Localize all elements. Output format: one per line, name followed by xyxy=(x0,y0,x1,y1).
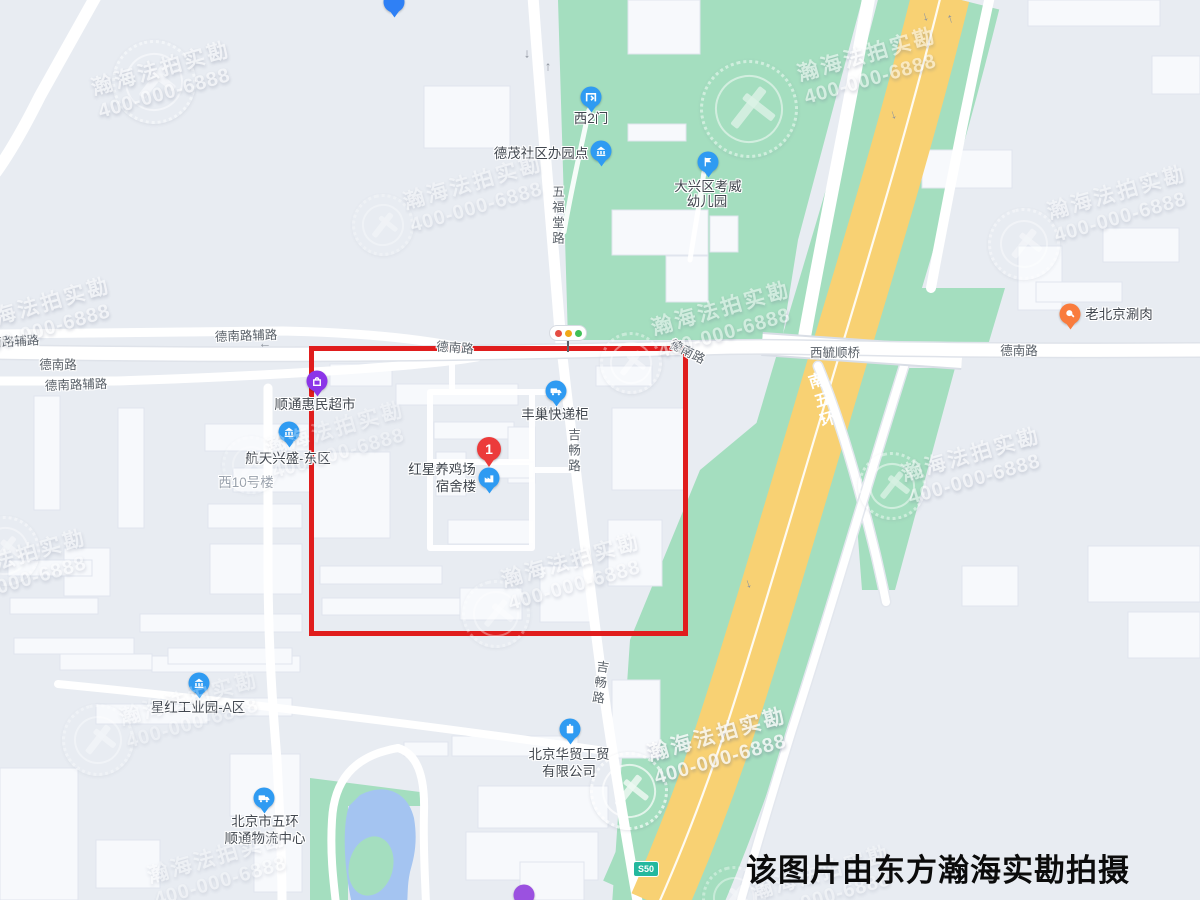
road-label-wufutang: 五福堂路 xyxy=(548,185,567,247)
truck-icon xyxy=(546,381,567,402)
poi-label: 航天兴盛-东区 xyxy=(245,451,331,466)
building-icon xyxy=(279,422,300,443)
poi-label-line2: 幼儿园 xyxy=(687,194,728,209)
road-label-jichang-upper: 吉畅路 xyxy=(564,428,583,475)
arrow-left-icon: ← xyxy=(259,336,272,351)
poi-label: 老北京涮肉 xyxy=(1085,307,1153,322)
school-icon xyxy=(591,141,612,162)
water-layer xyxy=(342,789,415,900)
poi-label-line2: 宿舍楼 xyxy=(436,479,477,494)
arrow-down-icon: ↓ xyxy=(524,46,531,61)
road-label-denan-center: 德南路 xyxy=(436,336,475,358)
route-badge-s50: S50 xyxy=(633,861,659,877)
truck-icon xyxy=(254,788,275,809)
arrow-up-icon: ↑ xyxy=(545,59,552,74)
poi-label-line1: 北京市五环 xyxy=(231,814,299,829)
office-icon xyxy=(560,719,581,740)
poi-label: 顺通惠民超市 xyxy=(275,397,356,412)
poi-label-line2: 有限公司 xyxy=(542,764,596,779)
poi-label-line1: 大兴区考威 xyxy=(674,179,742,194)
road-label-denan-right: 德南路 xyxy=(1000,340,1038,359)
highlight-rectangle xyxy=(309,346,688,636)
map-screenshot: 西2门 德茂社区办园点 大兴区考威 幼儿园 老北京涮肉 顺通惠民超市 丰巢快递柜… xyxy=(0,0,1200,900)
poi-label: 西2门 xyxy=(574,111,609,126)
shopping-bag-icon xyxy=(307,371,328,392)
poi-label-xi10: 西10号楼 xyxy=(218,475,274,490)
poi-label-line1: 红星养鸡场 xyxy=(408,462,476,477)
factory-icon xyxy=(479,468,500,489)
poi-label: 德茂社区办园点 xyxy=(494,146,589,161)
purple-poi-icon[interactable] xyxy=(514,885,535,900)
road-label-xiyushun-bridge: 西毓顺桥 xyxy=(810,342,860,361)
gate-icon xyxy=(581,87,602,108)
poi-label: 星红工业园-A区 xyxy=(151,700,246,715)
road-label-denan-fulu-bottom: 德南路辅路 xyxy=(44,373,107,394)
poi-label: 丰巢快递柜 xyxy=(521,407,589,422)
food-icon xyxy=(1060,304,1081,325)
road-label-denan-fulu-left: 德南路辅路 xyxy=(0,329,40,351)
traffic-light-icon xyxy=(549,325,587,341)
building-icon xyxy=(189,673,210,694)
photo-caption: 该图片由东方瀚海实勘拍摄 xyxy=(746,845,1130,890)
road-label-denan-left: 德南路 xyxy=(39,354,77,373)
poi-label-line1: 北京华贸工贸 xyxy=(529,747,610,762)
red-marker-1: 1 xyxy=(477,437,501,461)
flag-icon xyxy=(698,152,719,173)
poi-label-line2: 顺通物流中心 xyxy=(225,831,306,846)
